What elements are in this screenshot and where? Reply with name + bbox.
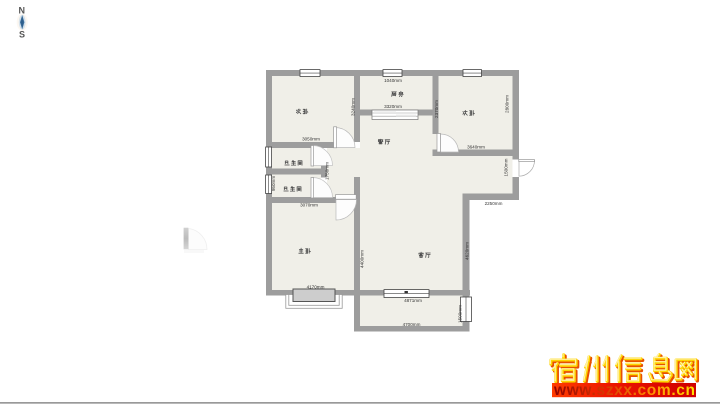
svg-text:4400mm: 4400mm: [360, 250, 365, 268]
svg-text:S: S: [19, 30, 25, 40]
svg-text:3070mm: 3070mm: [300, 202, 318, 207]
svg-text:3640mm: 3640mm: [467, 144, 485, 149]
svg-text:1040mm: 1040mm: [384, 78, 402, 83]
svg-text:4620mm: 4620mm: [465, 242, 470, 260]
svg-text:4170mm: 4170mm: [307, 285, 325, 290]
svg-text:3050mm: 3050mm: [302, 137, 320, 142]
svg-text:2370mm: 2370mm: [434, 100, 439, 118]
svg-text:4700mm: 4700mm: [403, 322, 421, 327]
svg-text:3240mm: 3240mm: [351, 98, 356, 116]
svg-text:2250mm: 2250mm: [485, 201, 503, 206]
svg-text:3320mm: 3320mm: [384, 104, 402, 109]
svg-text:1750mm: 1750mm: [324, 162, 329, 180]
svg-text:2800mm: 2800mm: [505, 95, 510, 113]
svg-text:1500mm: 1500mm: [458, 305, 463, 323]
svg-text:950mm: 950mm: [271, 176, 276, 191]
svg-text:1500mm: 1500mm: [503, 158, 508, 176]
svg-text:4871mm: 4871mm: [404, 298, 422, 303]
svg-text:www.szxx.com.cn: www.szxx.com.cn: [553, 382, 695, 399]
